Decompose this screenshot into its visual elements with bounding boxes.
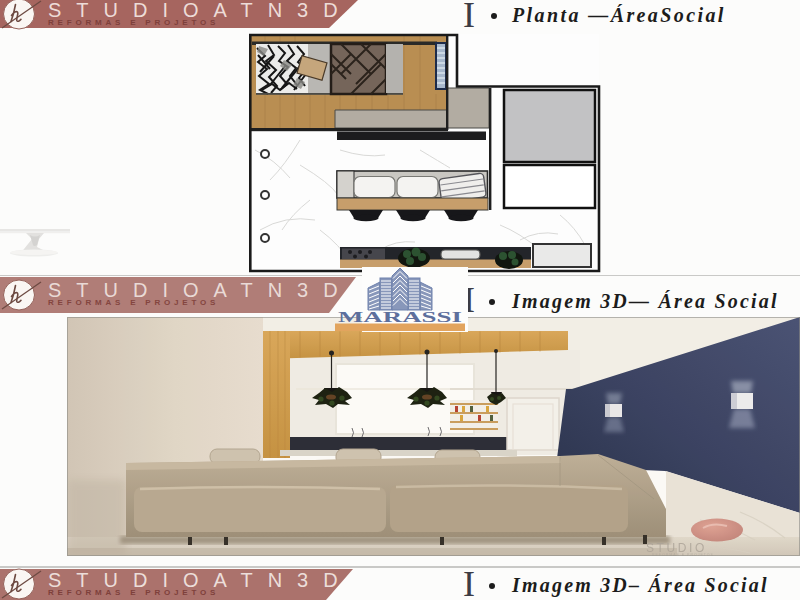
- svg-text:MARASSI: MARASSI: [338, 309, 462, 325]
